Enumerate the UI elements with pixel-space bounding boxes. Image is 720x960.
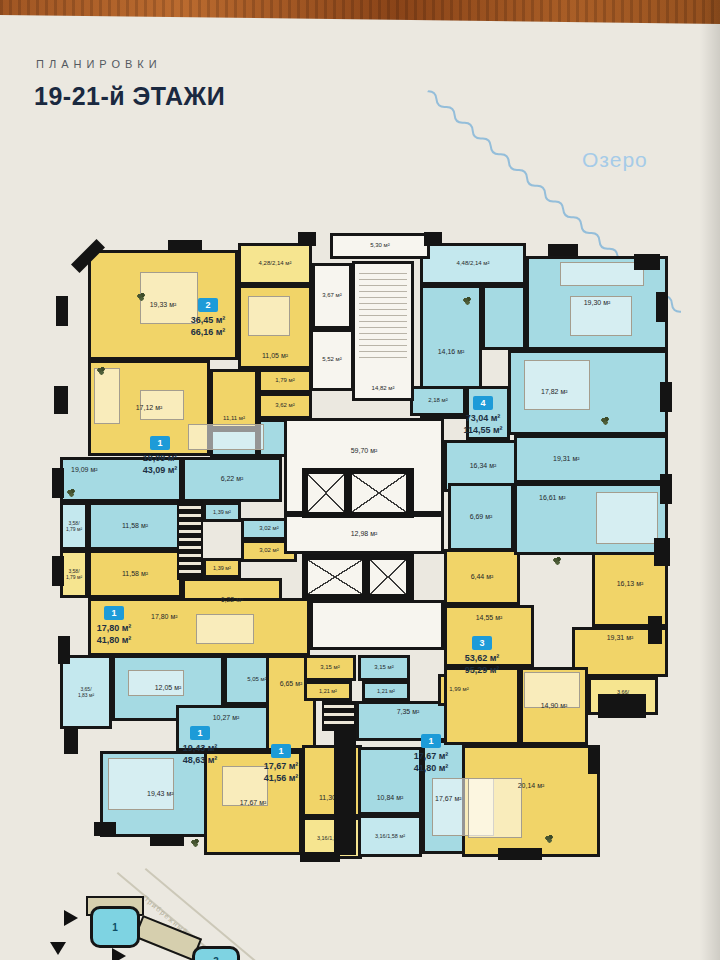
apartment-living-area: 36,45 м²	[191, 314, 226, 326]
area-label: 19,31 м²	[607, 634, 634, 642]
room-core-vestibule-1: 3,67 м²	[312, 263, 352, 329]
wall-pier	[56, 296, 68, 326]
riser-shaft-left	[177, 500, 203, 580]
apartment-tag-bcl: 1 17,67 м² 41,56 м²	[250, 744, 312, 784]
apartment-badge: 1	[421, 734, 441, 748]
apartment-living-area: 17,67 м²	[264, 760, 299, 772]
apartment-total-area: 114,55 м²	[463, 424, 502, 436]
area-label: 11,58 м²	[122, 522, 148, 530]
site-plan-building-3: 3	[192, 946, 240, 960]
area-label: 17,67 м²	[240, 799, 267, 807]
area-label: 2,18 м²	[428, 397, 447, 404]
area-label: 17,12 м²	[136, 404, 163, 412]
wall-pier	[298, 232, 316, 246]
furniture-sofa	[560, 262, 644, 286]
building-number: 3	[213, 956, 219, 960]
wall-pier	[660, 474, 672, 504]
room-core-stairwell: 14,82 м²	[352, 261, 414, 401]
area-label: 3,65/ 1,83 м²	[78, 686, 94, 698]
apartment-total-area: 95,29 м²	[465, 664, 500, 676]
room-lm-hall: 6,22 м²	[182, 457, 282, 502]
elevator-shaft	[368, 558, 408, 596]
apartment-badge: 4	[473, 396, 493, 410]
area-label: 11,11 м²	[223, 415, 245, 422]
apartment-total-area: 41,80 м²	[97, 634, 132, 646]
area-label: 5,52 м²	[322, 356, 341, 363]
plant-icon	[66, 488, 76, 497]
area-label: 3,15 м²	[320, 664, 339, 671]
wall-pier	[58, 636, 70, 664]
room-bcl-bath: 3,15 м²	[304, 655, 356, 681]
arrow-down-icon	[50, 942, 66, 955]
furniture-table	[188, 424, 264, 450]
furniture-bed	[524, 360, 590, 410]
area-label: 3,02 м²	[259, 547, 278, 554]
area-label: 6,65 м²	[280, 680, 303, 688]
wall-pier	[300, 852, 340, 862]
area-label: 19,31 м²	[553, 455, 580, 463]
area-label: 1,39 м²	[213, 565, 231, 572]
wall-pier	[64, 726, 78, 754]
area-label: 17,67 м²	[435, 795, 462, 803]
apartment-badge: 1	[190, 726, 210, 740]
furniture-bed	[596, 492, 658, 544]
area-label: 19,33 м²	[150, 301, 177, 309]
apartment-tag-3: 3 53,62 м² 95,29 м²	[450, 636, 514, 676]
area-label: 3,62 м²	[275, 402, 294, 409]
area-label: 11,58 м²	[122, 570, 148, 578]
plant-icon	[552, 556, 562, 565]
area-label: 6,22 м²	[221, 475, 244, 483]
plant-icon	[190, 838, 200, 847]
room-ly-balcony: 3,58/ 1,79 м²	[60, 550, 88, 598]
room-bcr-bath: 3,15 м²	[358, 655, 410, 681]
wall-pier	[588, 748, 600, 774]
room-a3-bath: 6,44 м²	[444, 549, 520, 605]
area-label: 3,15 м²	[374, 664, 393, 671]
area-label: 3,58/ 1,79 м²	[66, 568, 82, 580]
apartment-living-area: 17,67 м²	[414, 750, 449, 762]
page-title: 19-21-й ЭТАЖИ	[34, 82, 225, 111]
room-lm-balcony: 3,58/ 1,79 м²	[60, 502, 88, 550]
area-label: 3,67 м²	[322, 292, 341, 299]
area-label: 10,84 м²	[377, 794, 404, 802]
area-label: 5,05 м²	[247, 676, 266, 683]
apartment-badge: 1	[104, 606, 124, 620]
area-label: 16,13 м²	[617, 580, 644, 588]
wall-pier	[168, 240, 202, 252]
apartment-tag-bcr: 1 17,67 м² 41,80 м²	[400, 734, 462, 774]
area-label: 16,61 м²	[539, 494, 566, 502]
wall-pier	[634, 254, 660, 270]
page-edge-shadow	[700, 0, 720, 960]
arrow-right-icon	[112, 948, 126, 960]
wall-pier	[94, 822, 116, 836]
wall-pier	[54, 386, 68, 414]
elevator-bank-lower	[302, 554, 414, 600]
apartment-total-area: 66,16 м²	[191, 326, 226, 338]
furniture-table	[248, 296, 290, 336]
area-label: 20,14 м²	[518, 782, 545, 790]
area-label: 1,21 м²	[319, 688, 337, 695]
apartment-total-area: 43,09 м²	[143, 464, 178, 476]
wall-pier	[548, 244, 578, 256]
area-label: 10,27 м²	[213, 714, 240, 722]
room-core-lobby: 12,98 м²	[284, 514, 444, 554]
apartment-tag-lm: 1 19,09 м² 43,09 м²	[130, 436, 190, 476]
wall-pier	[656, 292, 668, 322]
stair-treads	[359, 268, 407, 360]
apartment-total-area: 41,80 м²	[414, 762, 449, 774]
apartment-tag-4: 4 73,04 м² 114,55 м²	[452, 396, 514, 436]
room-ly-kitchen: 11,58 м²	[88, 550, 182, 598]
room-bl-balcony: 3,65/ 1,83 м²	[60, 655, 112, 729]
room-bcr-wc: 1,21 м²	[362, 681, 410, 701]
area-label: 1,39 м²	[213, 509, 231, 516]
room-lm-kitchen: 11,58 м²	[88, 502, 182, 550]
area-label: 16,34 м²	[470, 462, 497, 470]
apartment-living-area: 73,04 м²	[466, 412, 501, 424]
wall-pier	[52, 556, 64, 586]
wall-pier	[52, 468, 64, 498]
area-label: 4,48/2,14 м²	[457, 260, 490, 267]
room-core-vestibule-2: 5,52 м²	[310, 329, 354, 391]
arrow-right-icon	[64, 910, 78, 926]
party-wall-shaft	[334, 731, 356, 855]
wood-table-edge	[0, 0, 720, 24]
area-label: 19,43 м²	[147, 790, 174, 798]
area-label: 4,28/2,14 м²	[259, 260, 292, 267]
room-a2-bath: 3,62 м²	[258, 393, 312, 419]
building-number: 1	[112, 922, 118, 933]
room-ly-wc: 1,39 м²	[203, 558, 241, 578]
apartment-living-area: 19,43 м²	[183, 742, 218, 754]
brochure-page: ПЛАНИРОВКИ 19-21-й ЭТАЖИ Озеро 19,33 м² …	[0, 0, 720, 960]
area-label: 7,35 м²	[397, 708, 420, 716]
room-bcl-wc: 1,21 м²	[304, 681, 352, 701]
area-label: 14,82 м²	[372, 385, 395, 392]
wall-pier	[424, 232, 442, 246]
apartment-badge: 1	[150, 436, 170, 450]
room-a4-balcony: 4,48/2,14 м²	[420, 243, 526, 285]
wall-pier	[654, 538, 670, 566]
page-kicker: ПЛАНИРОВКИ	[36, 58, 162, 70]
elevator-shaft	[306, 472, 346, 514]
wall-pier	[660, 382, 672, 412]
room-a2-hall: 11,11 м²	[210, 369, 258, 429]
area-label: 14,90 м²	[541, 702, 568, 710]
apartment-badge: 2	[198, 298, 218, 312]
plant-icon	[544, 834, 554, 843]
wall-pier	[498, 848, 542, 860]
area-label: 3,58/ 1,79 м²	[66, 520, 82, 532]
area-label: 5,30 м²	[370, 242, 389, 249]
plant-icon	[136, 292, 146, 301]
area-label: 14,16 м²	[438, 348, 465, 356]
area-label: 12,98 м²	[351, 530, 378, 538]
elevator-shaft	[306, 558, 364, 596]
room-bcr-balcony: 3,16/1,58 м²	[358, 815, 422, 857]
area-label: 3,16/1,58 м²	[375, 833, 405, 840]
elevator-shaft	[350, 472, 408, 514]
room-lm-wc: 1,39 м²	[203, 502, 241, 522]
apartment-living-area: 17,80 м²	[97, 622, 132, 634]
wall-pier	[150, 834, 184, 846]
apartment-living-area: 19,09 м²	[143, 452, 178, 464]
room-core-balcony: 5,30 м²	[330, 233, 430, 259]
plant-icon	[462, 296, 472, 305]
room-a2-wc: 1,79 м²	[258, 369, 312, 393]
room-a4-bedroom2: 19,31 м²	[514, 435, 668, 483]
apartment-badge: 1	[271, 744, 291, 758]
area-label: 19,09 м²	[71, 466, 98, 474]
area-label: 6,22 м²	[221, 596, 244, 604]
area-label: 14,55 м²	[476, 614, 503, 622]
area-label: 19,30 м²	[584, 299, 611, 307]
wall-pier	[598, 694, 646, 718]
area-label: 17,82 м²	[541, 388, 568, 396]
plant-icon	[96, 366, 106, 375]
apartment-total-area: 48,63 м²	[183, 754, 218, 766]
furniture-bed	[108, 758, 174, 810]
apartment-total-area: 41,56 м²	[264, 772, 299, 784]
area-label: 17,80 м²	[151, 613, 178, 621]
apartment-badge: 3	[472, 636, 492, 650]
room-a4-bath: 6,69 м²	[448, 483, 514, 551]
plant-icon	[600, 416, 610, 425]
area-label: 1,21 м²	[377, 688, 395, 695]
furniture-bed	[468, 778, 522, 838]
room-a4-filler2	[482, 285, 526, 350]
area-label: 1,99 м²	[449, 686, 468, 693]
area-label: 1,79 м²	[275, 377, 294, 384]
apartment-living-area: 53,62 м²	[465, 652, 500, 664]
area-label: 6,69 м²	[470, 513, 493, 521]
riser-shaft-bottom	[322, 701, 356, 731]
area-label: 12,05 м²	[155, 684, 182, 692]
apartment-tag-bl: 1 19,43 м² 48,63 м²	[168, 726, 232, 766]
furniture-table	[196, 614, 254, 644]
area-label: 6,44 м²	[471, 573, 494, 581]
furniture-sofa	[94, 368, 120, 424]
area-label: 11,05 м²	[262, 352, 288, 360]
room-a2-balcony: 4,28/2,14 м²	[238, 243, 312, 285]
lake-label: Озеро	[582, 148, 648, 172]
elevator-bank-upper	[302, 468, 414, 518]
apartment-tag-ly: 1 17,80 м² 41,80 м²	[84, 606, 144, 646]
wall-pier	[648, 616, 662, 644]
site-plan-building-1: 1	[90, 906, 140, 948]
apartment-tag-2: 2 36,45 м² 66,16 м²	[176, 298, 240, 338]
area-label: 59,70 м²	[351, 447, 378, 455]
room-core-corridor-south	[310, 600, 444, 650]
area-label: 3,02 м²	[259, 525, 278, 532]
